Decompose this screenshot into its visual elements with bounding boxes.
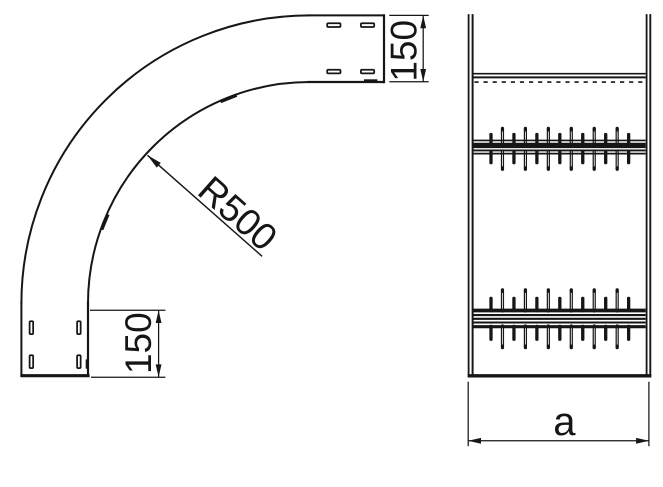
svg-text:a: a (553, 400, 576, 444)
svg-text:150: 150 (118, 312, 159, 374)
svg-text:150: 150 (383, 20, 424, 82)
